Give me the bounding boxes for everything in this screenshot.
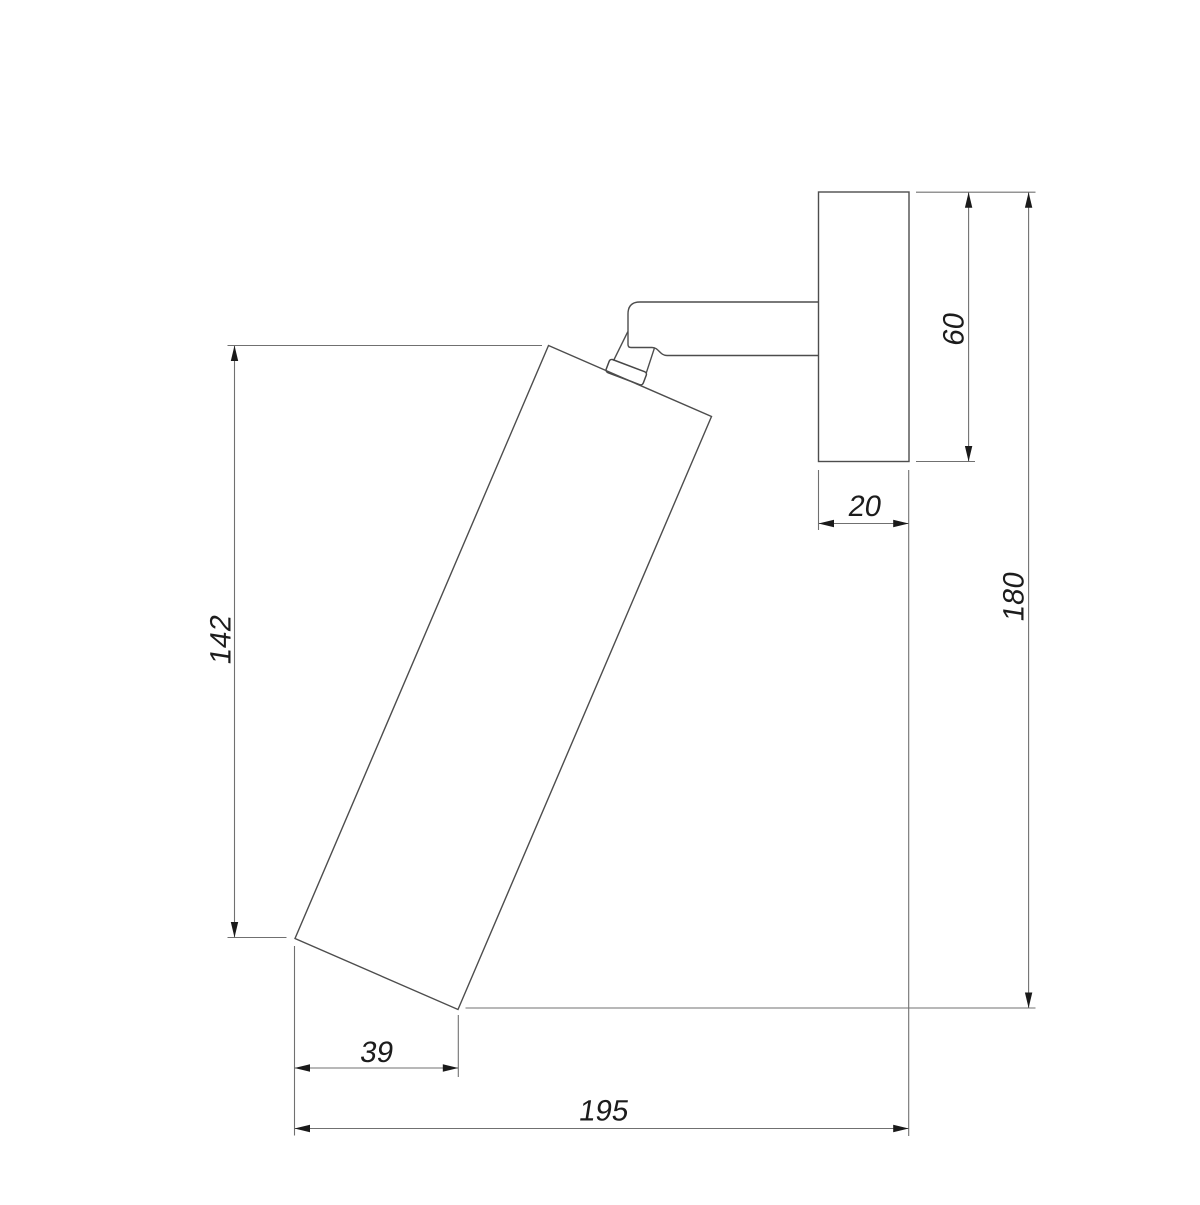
svg-text:142: 142 <box>205 612 238 666</box>
svg-text:180: 180 <box>998 569 1031 623</box>
svg-text:195: 195 <box>577 1095 631 1128</box>
svg-text:60: 60 <box>938 310 971 348</box>
svg-text:39: 39 <box>358 1036 396 1069</box>
svg-text:20: 20 <box>846 490 884 523</box>
